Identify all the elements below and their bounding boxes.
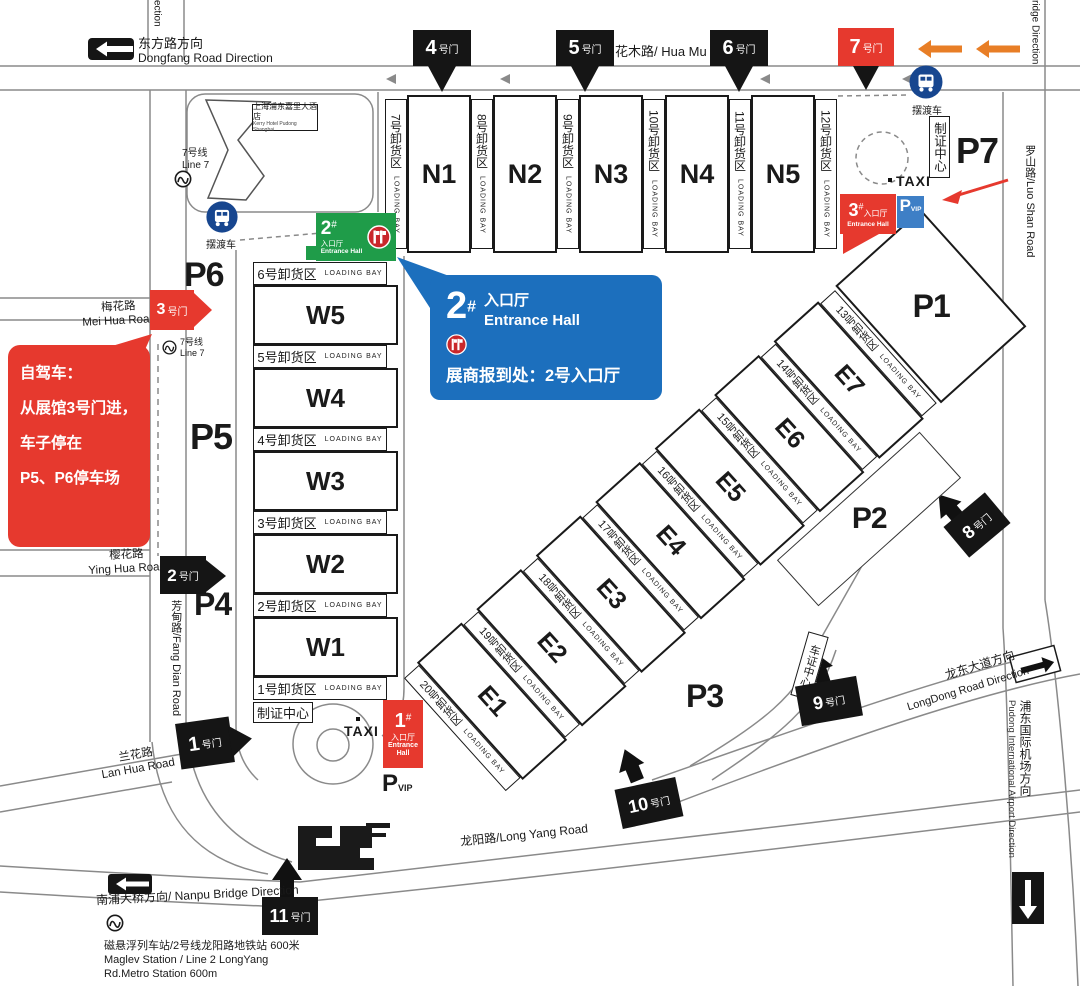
hotel-label: 上海浦东嘉里大酒店 Kerry Hotel Pudong Shanghai <box>252 104 318 131</box>
gate-4-arrow-icon <box>428 66 456 92</box>
hall-n2: N2 <box>493 95 557 253</box>
hall-n4: N4 <box>665 95 729 253</box>
taxi-label-bottom: TAXI <box>344 723 379 739</box>
sniec-venue-map: { "colors":{"red":"#E6392E","green":"#1F… <box>0 0 1080 986</box>
vip-parking-bottom: PVIP <box>382 770 413 798</box>
parking-p1: P1 <box>912 288 949 325</box>
entrance-2-callout: 2# 入口厅 Entrance Hall 展商报到处：2号入口厅 <box>430 275 662 400</box>
parking-p2: P2 <box>852 502 887 536</box>
loading-bay-3: 3号卸货区LOADING BAY <box>253 511 387 534</box>
badge-center-bottom: 制证中心 <box>253 702 313 723</box>
road-label-fangdian: 芳甸路/Fang Dian Road <box>168 600 182 718</box>
shuttle-label-top: 摆渡车 <box>912 102 942 117</box>
loading-bay-10: 10号卸货区LOADING BAY <box>643 99 665 249</box>
road-label-dongfang-cn: 东方路方向 <box>138 36 203 52</box>
gate-7: 7号门 <box>838 28 894 66</box>
airport-down-arrow-icon <box>1012 872 1044 924</box>
loading-bay-6: 6号卸货区LOADING BAY <box>253 262 387 285</box>
shuttle-label-left: 摆渡车 <box>206 236 236 251</box>
north-halls-row: 7号卸货区LOADING BAY N1 8号卸货区LOADING BAY N2 … <box>385 95 837 253</box>
metro-icon-left <box>162 340 177 355</box>
taxi-dot-bottom <box>356 717 360 721</box>
road-label-meihua: 梅花路Mei Hua Road <box>81 298 156 331</box>
gate-3-arrow-icon <box>194 293 212 327</box>
road-label-partial-right: ridge Direction <box>1028 0 1041 62</box>
hall-w2: W2 <box>253 534 398 594</box>
road-label-partial-left: ection <box>150 0 163 55</box>
shuttle-bus-icon-top <box>908 64 944 100</box>
gate-2: 2号门 <box>160 556 206 594</box>
taxi-label-top: TAXI <box>896 173 931 189</box>
gate-7-arrow-icon <box>853 66 879 90</box>
loading-bay-11: 11号卸货区LOADING BAY <box>729 99 751 249</box>
shuttle-bus-icon-left <box>205 200 239 234</box>
loading-bay-5: 5号卸货区LOADING BAY <box>253 345 387 368</box>
parking-p7: P7 <box>956 130 998 172</box>
loading-bay-2: 2号卸货区LOADING BAY <box>253 594 387 617</box>
hall-n3: N3 <box>579 95 643 253</box>
road-label-luoshan: 罗山路/Luo Shan Road <box>1022 145 1036 253</box>
gate-6-arrow-icon <box>725 66 753 92</box>
gate-11: 11号门 <box>262 897 318 935</box>
self-drive-callout: 自驾车： 从展馆3号门进， 车子停在 P5、P6停车场 <box>8 345 150 547</box>
loading-bay-4: 4号卸货区LOADING BAY <box>253 428 387 451</box>
parking-p3: P3 <box>686 678 723 715</box>
hall-n5: N5 <box>751 95 815 253</box>
badge-center-top: 制证中心 <box>929 116 950 178</box>
west-halls-column: 6号卸货区LOADING BAY W5 5号卸货区LOADING BAY W4 … <box>253 262 398 700</box>
entrance-hall-3-wing <box>843 234 879 254</box>
taxi-dot-top <box>888 178 892 182</box>
metro-line7-label-left: 7号线 Line 7 <box>180 337 205 359</box>
gate-3: 3号门 <box>150 290 194 330</box>
gate-4: 4号门 <box>413 30 471 66</box>
entrance-hall-3: 3#入口厅 Entrance Hall <box>840 194 896 234</box>
entrance-hall-2: 2# 入口厅 Entrance Hall <box>316 213 396 261</box>
hall-n1: N1 <box>407 95 471 253</box>
loading-bay-8: 8号卸货区LOADING BAY <box>471 99 493 249</box>
orange-arrow-icon <box>918 40 1020 58</box>
entrance-hall-1: 1# 入口厅 Entrance Hall <box>383 700 423 768</box>
parking-p5: P5 <box>190 416 232 458</box>
loading-bay-12: 12号卸货区LOADING BAY <box>815 99 837 249</box>
road-label-airport: 浦东国际机场方向 Pudong International Airport Di… <box>1006 700 1034 872</box>
road-label-yinghua: 樱花路Ying Hua Road <box>87 546 166 579</box>
gate-1: 1号门 <box>175 716 235 769</box>
loading-bay-9: 9号卸货区LOADING BAY <box>557 99 579 249</box>
registration-note: 展商报到处：2号入口厅 <box>446 362 646 386</box>
dongfang-left-arrow-icon <box>88 38 134 60</box>
hall-w3: W3 <box>253 451 398 511</box>
registration-icon-blue <box>446 334 467 355</box>
metro-icon-top <box>174 170 192 188</box>
longyang-building-footprint <box>298 823 390 870</box>
road-flow-arrow-icons <box>386 74 912 84</box>
hall-w1: W1 <box>253 617 398 677</box>
gate-5-arrow-icon <box>571 66 599 92</box>
gate-1-arrow-icon <box>228 723 254 758</box>
loading-bay-1: 1号卸货区LOADING BAY <box>253 677 387 700</box>
metro-icon-maglev <box>106 914 124 932</box>
gate-6: 6号门 <box>710 30 768 66</box>
vip-parking-top: PVIP <box>897 196 924 228</box>
registration-icon-green <box>367 225 391 249</box>
vip-pointer-arrow-icon <box>942 180 1008 204</box>
metro-line7-label-top: 7号线 Line 7 <box>182 148 209 172</box>
gate-5: 5号门 <box>556 30 614 66</box>
maglev-note: 磁悬浮列车站/2号线龙阳路地铁站 600米 Maglev Station / L… <box>104 940 300 981</box>
hall-w4: W4 <box>253 368 398 428</box>
hall-w5: W5 <box>253 285 398 345</box>
gate-2-arrow-icon <box>206 560 226 592</box>
